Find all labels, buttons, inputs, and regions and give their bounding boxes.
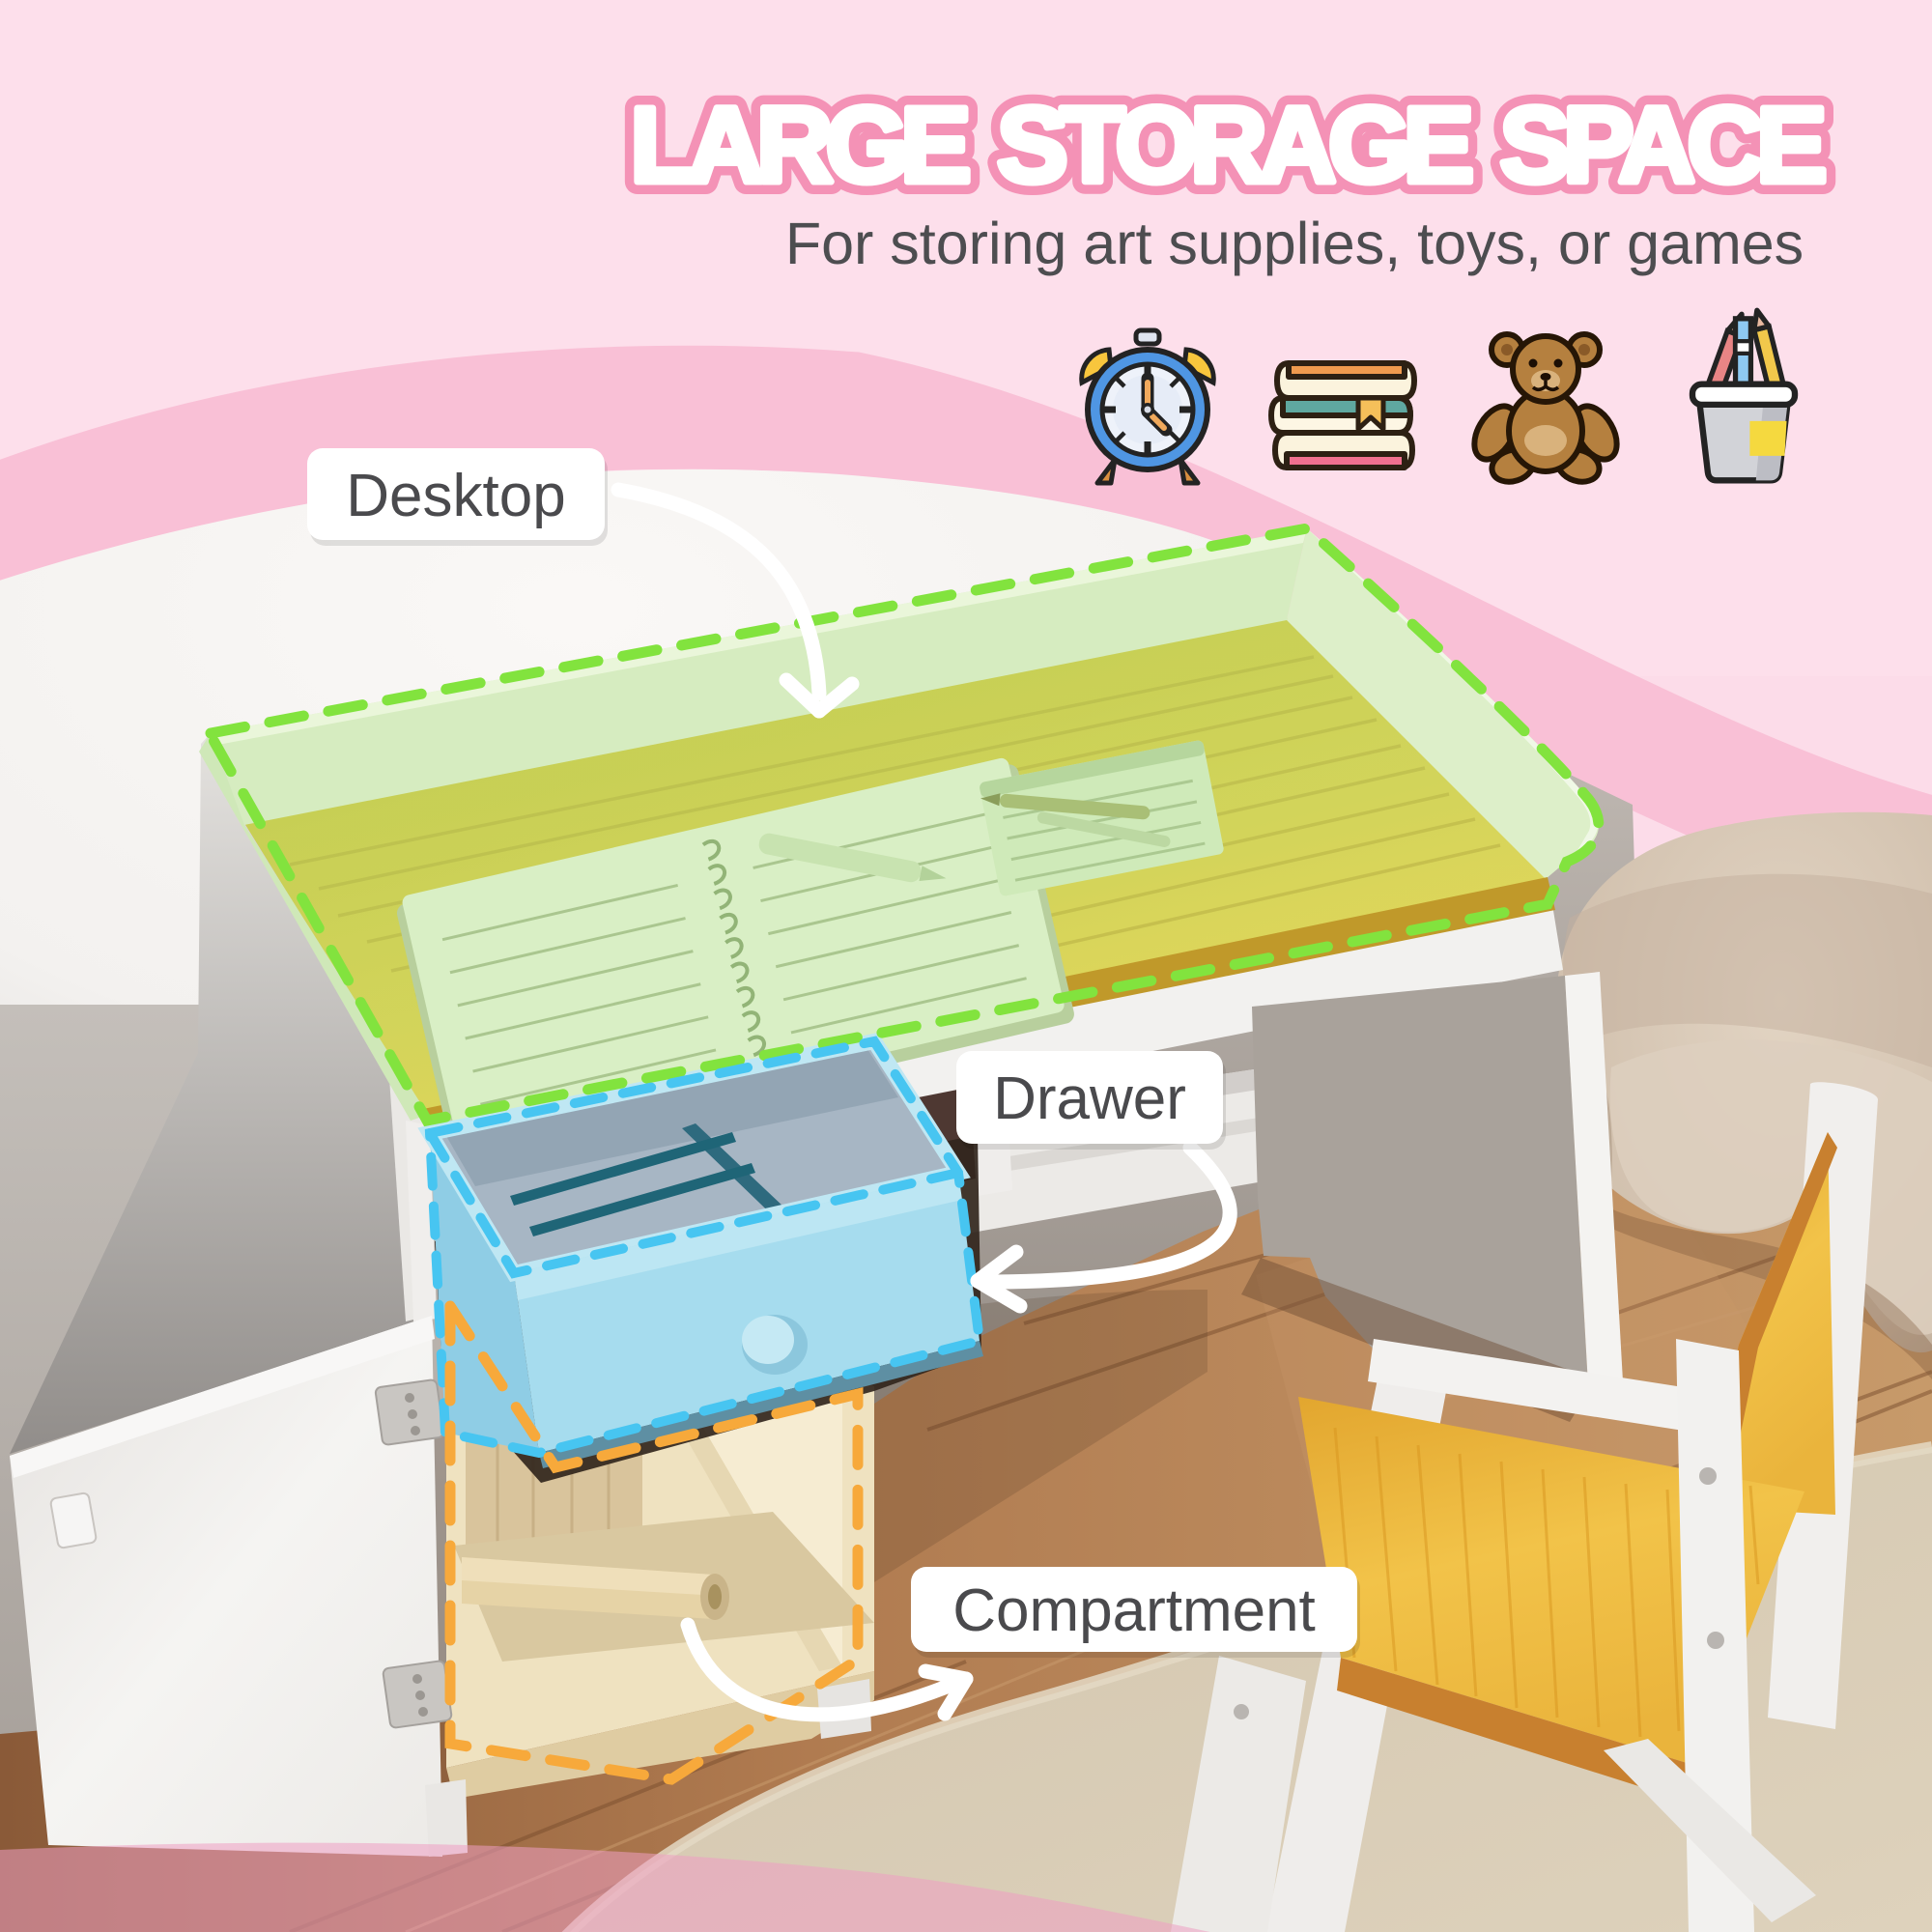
svg-text:LARGE STORAGE SPACE: LARGE STORAGE SPACE: [631, 86, 1825, 205]
svg-text:For storing art supplies, toys: For storing art supplies, toys, or games: [785, 211, 1804, 276]
svg-text:Drawer: Drawer: [993, 1065, 1186, 1132]
svg-text:Compartment: Compartment: [952, 1577, 1316, 1644]
svg-text:Desktop: Desktop: [346, 463, 565, 529]
